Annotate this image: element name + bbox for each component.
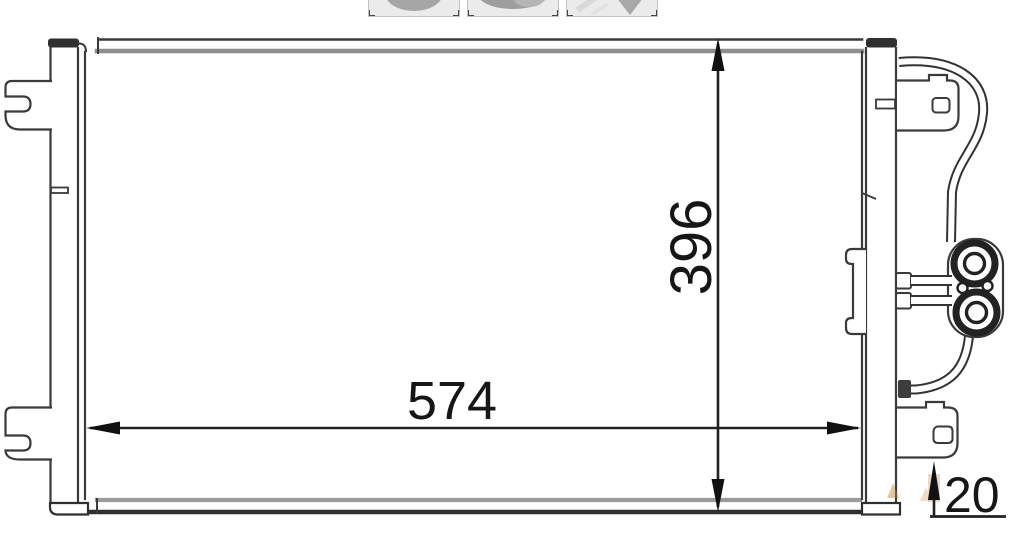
tank-tab-mark <box>876 100 895 109</box>
dim-depth-label: 20 <box>944 467 1000 523</box>
pipe-fitting <box>896 293 911 309</box>
port-block <box>896 239 1003 337</box>
right-mid-flange <box>846 249 866 334</box>
arrowhead-down <box>712 479 725 512</box>
tank-tick-mark <box>862 193 876 199</box>
bracket-hole <box>934 427 953 444</box>
arrowhead-left <box>86 422 120 435</box>
bolt-hole <box>983 281 993 291</box>
dimension-height: 396 <box>659 38 725 512</box>
screenshot-canvas: 396 574 20 <box>0 0 1024 550</box>
tank-foot <box>50 503 88 515</box>
arrowhead-up <box>712 38 725 71</box>
right-tank <box>862 38 900 515</box>
dim-width-label: 574 <box>407 371 497 431</box>
left-tank <box>48 39 88 515</box>
left-bracket-bottom <box>6 408 53 460</box>
arrowhead-right <box>827 422 861 435</box>
dim-height-label: 396 <box>659 199 724 296</box>
condenser-dimension-drawing: 396 574 20 <box>0 0 1024 550</box>
left-bracket-top <box>6 81 53 130</box>
right-bracket-bottom <box>897 402 958 458</box>
right-bracket-top <box>897 75 959 131</box>
tank-clip-mark <box>51 188 68 194</box>
core-frame <box>85 38 862 513</box>
tank-foot <box>862 503 900 515</box>
pipe-fitting <box>896 273 911 289</box>
dimension-width: 574 <box>86 371 861 435</box>
bolt-hole <box>958 283 968 293</box>
pipe-end-nub <box>898 380 911 398</box>
bracket-hole <box>933 98 950 113</box>
